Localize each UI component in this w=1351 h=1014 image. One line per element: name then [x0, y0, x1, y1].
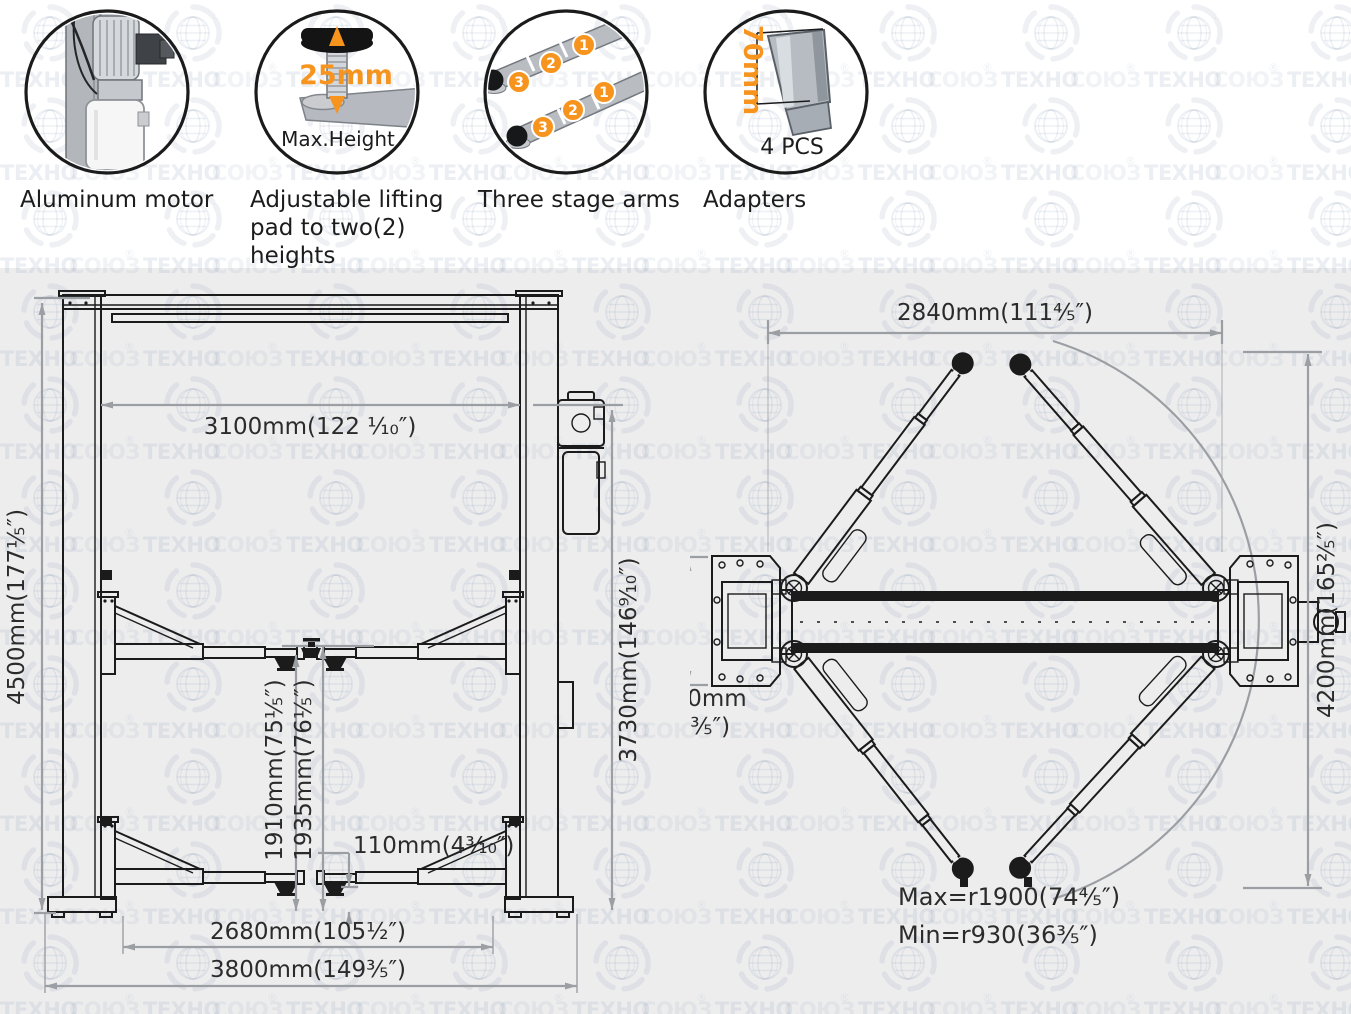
arm-pivots — [781, 575, 1229, 667]
feature-row: Aluminum motor 25mm Max.Height Adjustabl… — [0, 0, 1351, 270]
dim-arm-height: 1910mm(75⅕″) — [262, 679, 288, 860]
front-view: 4500mm(177⅕″) 3100mm(122 ⅒″) 3730mm(146⁹… — [0, 268, 690, 1014]
power-unit — [558, 392, 605, 534]
feature-lifting-pad: 25mm Max.Height Adjustable lifting pad t… — [250, 11, 444, 269]
feature-aluminum-motor: Aluminum motor — [20, 6, 214, 213]
tv-arm-upper-left — [792, 348, 992, 596]
dim-inner-width: 2680mm(105½″) — [210, 919, 406, 945]
fv-arm-right-raised — [317, 592, 523, 674]
dim-pad-min: 110mm(4³⁄₁₀″) — [353, 833, 514, 859]
stage-2-badge-b: 2 — [568, 103, 578, 119]
stage-2-badge: 2 — [546, 56, 556, 72]
dim-reach-max: Max=r1900(74⅘″) — [898, 883, 1120, 911]
tv-arm-lower-right — [991, 643, 1216, 883]
feature-three-stage-arms: 1 2 3 1 2 3 Three stage arms — [477, 10, 680, 213]
dim-base-depth-inches: (27⅗″) — [690, 714, 730, 740]
dim-overall-height: 4500mm(177⅕″) — [4, 509, 30, 705]
feature-arms-label: Three stage arms — [477, 187, 680, 213]
dim-overall-length: 4200mm(165⅖″) — [1314, 522, 1340, 718]
stage-1-badge-b: 1 — [599, 85, 609, 101]
arm-pad-lower — [507, 126, 528, 147]
tv-dimensions: 2840mm(111⅘″) 700mm (27⅗″) 4200mm(165⅖″)… — [690, 300, 1340, 949]
dim-column-height: 3730mm(146⁹⁄₁₀″) — [616, 557, 642, 762]
dim-drive-through: 2840mm(111⅘″) — [897, 300, 1093, 326]
tv-structure — [712, 348, 1345, 887]
stage-3-badge: 3 — [514, 75, 524, 91]
feature-pad-label-line1: Adjustable lifting — [250, 187, 444, 213]
feature-pad-label-line2: pad to two(2) — [250, 215, 406, 241]
stage-3-badge-b: 3 — [538, 120, 548, 136]
dim-clear-width: 3100mm(122 ⅒″) — [204, 414, 417, 440]
feature-adapters: 70mm 4 PCS Adapters — [703, 11, 867, 213]
oil-tank — [563, 452, 599, 534]
tv-left-column — [712, 556, 786, 686]
arm-swing-arc — [1053, 341, 1259, 899]
fv-arm-left-raised — [98, 592, 304, 674]
fv-structure — [48, 291, 605, 917]
pad-caption: Max.Height — [281, 127, 395, 151]
tv-arm-upper-right — [991, 349, 1216, 598]
feature-pad-label-line3: heights — [250, 243, 335, 269]
lift-pad — [274, 657, 298, 668]
pad-travel-value: 25mm — [299, 60, 393, 91]
adapter-photo: 70mm 4 PCS — [737, 25, 831, 160]
feature-adapters-label: Adapters — [703, 187, 806, 213]
motor-photo — [66, 6, 174, 176]
feature-motor-label: Aluminum motor — [20, 187, 214, 213]
adapter-height-value: 70mm — [737, 25, 767, 115]
overhead-bar — [112, 314, 508, 322]
stage-1-badge: 1 — [579, 38, 589, 54]
dim-base-depth: 700mm — [690, 686, 747, 712]
arms-photo: 1 2 3 1 2 3 — [482, 10, 664, 149]
dim-overall-width: 3800mm(149⅗″) — [210, 957, 406, 983]
page: { "colors": { "accent": "#F7941E", "line… — [0, 0, 1351, 1014]
top-crossbeam — [63, 295, 558, 309]
dim-reach-min: Min=r930(36⅗″) — [898, 921, 1098, 949]
dim-pad-height: 1935mm(76⅕″) — [291, 679, 317, 860]
adapter-count: 4 PCS — [760, 135, 824, 160]
tv-arm-lower-left — [793, 645, 993, 883]
top-view: 2840mm(111⅘″) 700mm (27⅗″) 4200mm(165⅖″)… — [690, 268, 1351, 1014]
